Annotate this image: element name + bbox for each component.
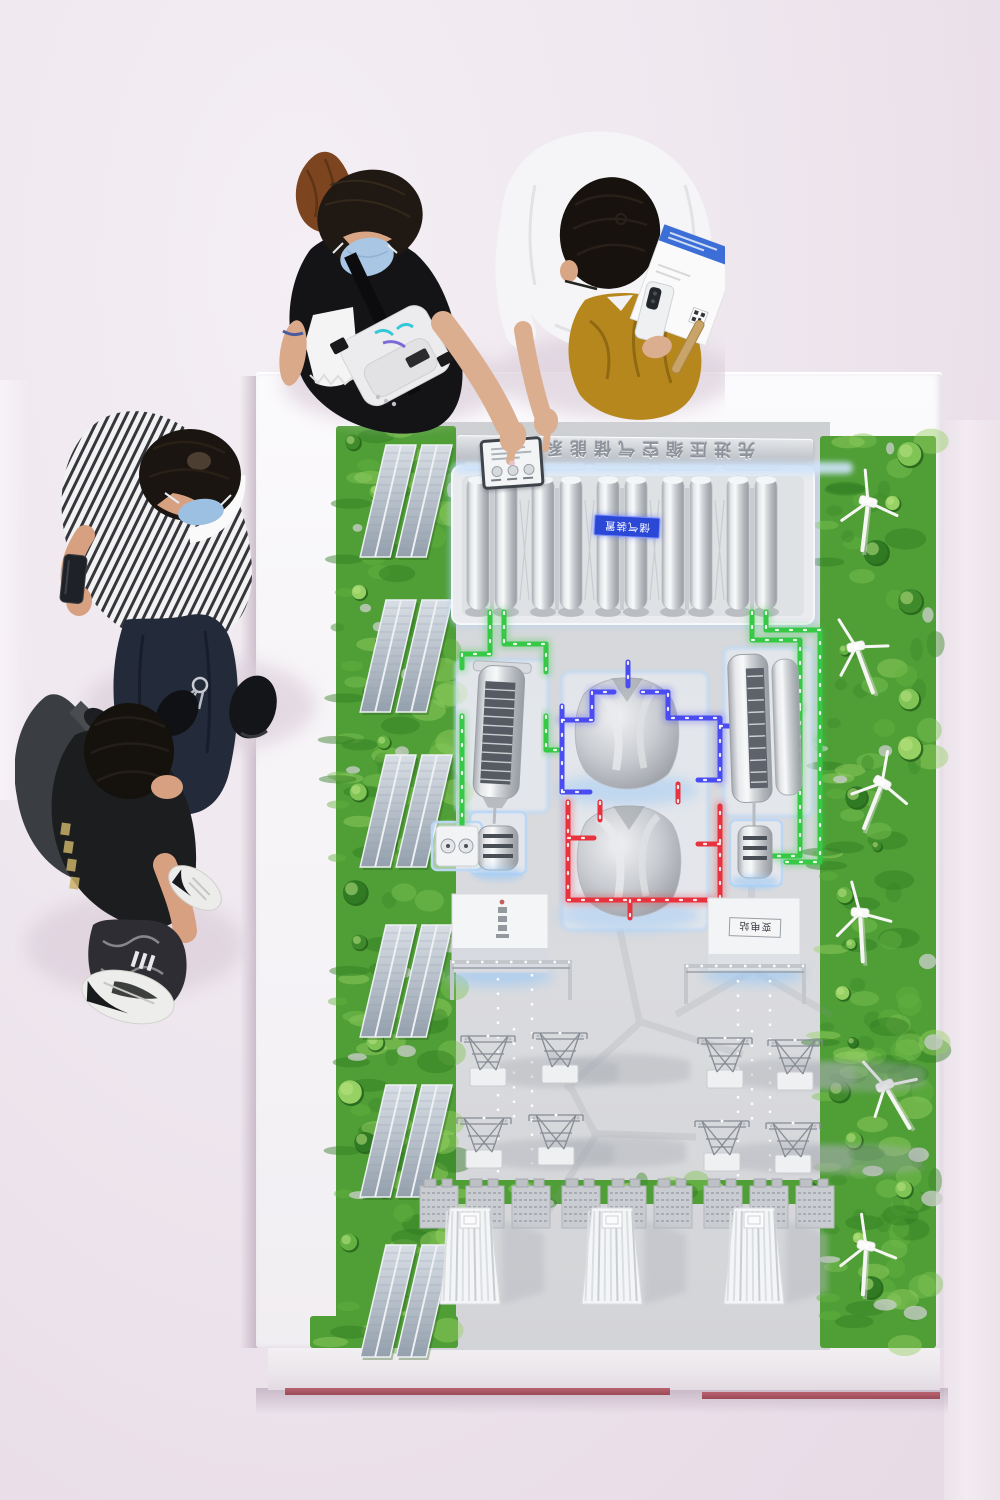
- powerhouse-building: [446, 894, 554, 986]
- man-ear: [560, 260, 578, 282]
- exhibition-overhead-photo: 先进压缩空气储能系统 储气装置 变电站: [0, 0, 1000, 1500]
- motor-generator-left: [472, 826, 524, 881]
- control-dial-box: [436, 826, 478, 866]
- shirt-sleeve: [511, 215, 521, 333]
- substation-building: [702, 898, 806, 984]
- neck-skin: [151, 775, 183, 799]
- panel-button-label: [523, 477, 533, 480]
- dark-smartphone: [60, 554, 88, 604]
- residential-buildings: [420, 1179, 834, 1304]
- table-baseboard: [702, 1392, 940, 1399]
- gas-storage-label: 储气装置: [593, 514, 660, 538]
- heat-storage-cutaway: [727, 653, 802, 803]
- substation-label: 变电站: [729, 917, 782, 938]
- crown-scalp: [187, 452, 211, 470]
- table-baseboard: [285, 1388, 670, 1395]
- energy-storage-scale-model: [300, 410, 960, 1360]
- panel-button-label: [491, 479, 501, 482]
- visitors-left: [15, 385, 345, 1045]
- panel-button-label: [507, 478, 517, 481]
